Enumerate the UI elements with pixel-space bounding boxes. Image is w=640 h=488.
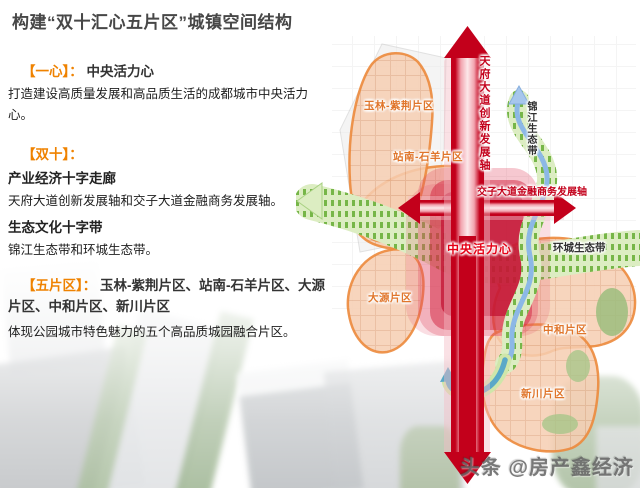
park-green-area [566, 350, 590, 382]
label-jiaozi-axis: 交子大道金融商务发展轴 [477, 183, 587, 198]
label-district-yulin: 玉林-紫荆片区 [364, 98, 434, 113]
watermark: 头条 @房产鑫经济 [460, 451, 634, 480]
label-jinjiang-belt: 锦江生态带 [523, 101, 538, 156]
section-one-heart: 【一心】： 中央活力心 打造建设高质量发展和高品质生活的成都城市中央活力心。 [8, 60, 326, 125]
label-district-xinchuan: 新川片区 [521, 386, 565, 401]
park-green-area [596, 288, 628, 336]
park-green-area [542, 414, 578, 434]
infographic-canvas: 构建“双十汇心五片区”城镇空间结构 【一心】： 中央活力心 打造建设高质量发展和… [0, 0, 640, 488]
label-central-vitality-heart: 中央活力心 [447, 240, 512, 257]
one-heart-tag: 【一心】： [22, 64, 83, 79]
vertical-axis-solid-segment [459, 236, 476, 452]
text-panel: 构建“双十汇心五片区”城镇空间结构 【一心】： 中央活力心 打造建设高质量发展和… [8, 8, 326, 342]
double-ten-sub2: 生态文化十字带 [8, 216, 326, 236]
section-double-ten: 【双十】： 产业经济十字走廊 天府大道创新发展轴和交子大道金融商务发展轴。 生态… [8, 143, 326, 260]
double-ten-tag: 【双十】： [22, 147, 83, 162]
five-districts-body: 体现公园城市特色魅力的五个高品质城园融合片区。 [8, 322, 326, 343]
section-five-districts: 【五片区】： 玉林-紫荆片区、站南-石羊片区、大源片区、中和片区、新川片区 体现… [8, 275, 326, 343]
label-ring-belt: 环城生态带 [553, 240, 606, 255]
label-district-dayuan: 大源片区 [368, 290, 412, 305]
double-ten-sub1: 产业经济十字走廊 [8, 167, 326, 187]
five-districts-tag: 【五片区】： [22, 278, 96, 293]
label-tianfu-axis: 天府大道创新发展轴 [476, 55, 492, 172]
one-heart-body: 打造建设高质量发展和高品质生活的成都城市中央活力心。 [8, 84, 326, 125]
double-ten-body2: 锦江生态带和环城生态带。 [8, 240, 326, 261]
double-ten-body1: 天府大道创新发展轴和交子大道金融商务发展轴。 [8, 191, 326, 212]
page-title: 构建“双十汇心五片区”城镇空间结构 [12, 8, 326, 33]
label-district-zhannan: 站南-石羊片区 [393, 149, 463, 164]
one-heart-heading: 中央活力心 [87, 64, 155, 79]
label-district-zhonghe: 中和片区 [543, 322, 587, 337]
